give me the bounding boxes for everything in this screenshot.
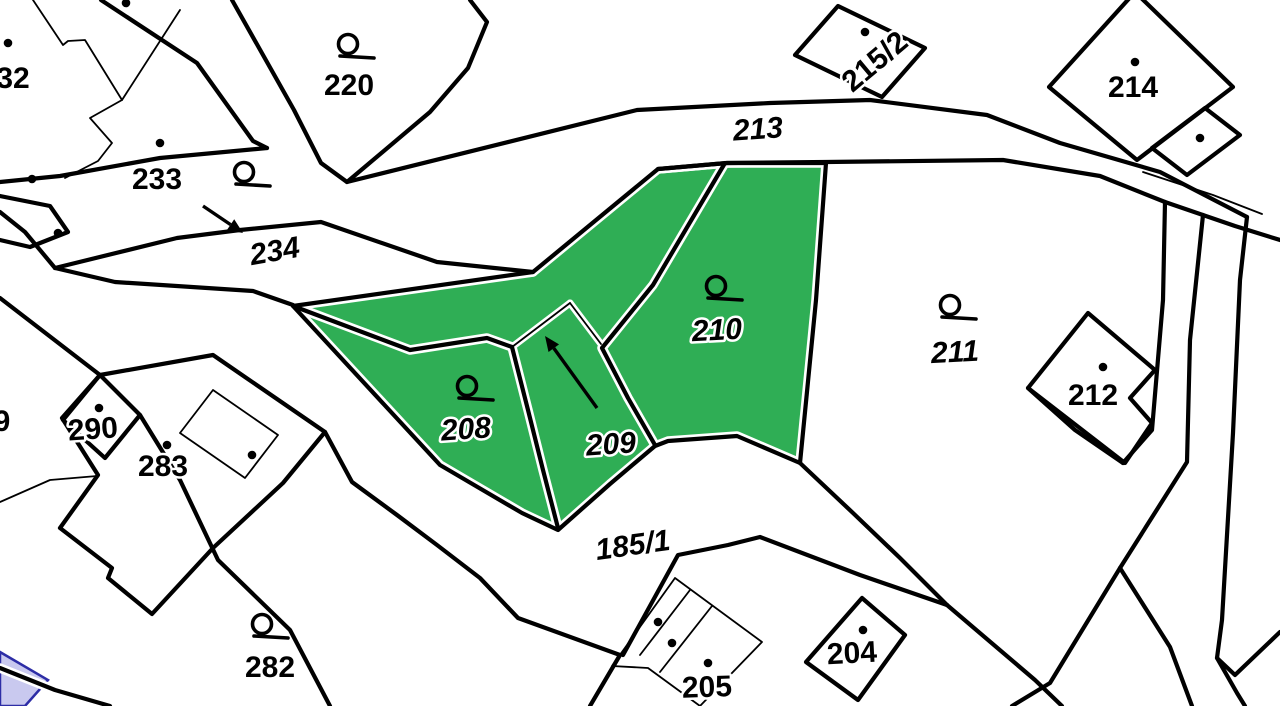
label-parcel-211: 211 bbox=[929, 335, 979, 371]
building-dot bbox=[248, 451, 257, 460]
building-dot bbox=[861, 28, 870, 37]
landuse-tail-icon bbox=[459, 398, 493, 400]
label-parcel-209: 209 bbox=[584, 426, 638, 463]
landuse-tail-icon bbox=[340, 56, 374, 58]
label-parcel-9: 9 bbox=[0, 405, 10, 438]
building-dot bbox=[1196, 134, 1205, 143]
map-canvas[interactable]: 32233220234213215/2214210211212208209185… bbox=[0, 0, 1280, 706]
label-parcel-214: 214 bbox=[1108, 71, 1158, 104]
building-dot bbox=[654, 618, 663, 627]
label-parcel-210: 210 bbox=[690, 313, 743, 349]
label-parcel-204: 204 bbox=[826, 636, 878, 672]
building-dot bbox=[1131, 58, 1140, 67]
label-parcel-283: 283 bbox=[138, 450, 188, 483]
building-dot bbox=[28, 175, 37, 184]
cadastral-map[interactable]: 32233220234213215/2214210211212208209185… bbox=[0, 0, 1280, 706]
label-parcel-32: 32 bbox=[0, 62, 30, 95]
landuse-tail-icon bbox=[236, 184, 270, 186]
label-parcel-205: 205 bbox=[681, 670, 732, 705]
building-dot bbox=[95, 404, 104, 413]
building-dot bbox=[163, 441, 172, 450]
building-dot bbox=[704, 659, 713, 668]
building-dot bbox=[859, 626, 868, 635]
label-parcel-213: 213 bbox=[731, 111, 785, 148]
label-parcel-282: 282 bbox=[245, 651, 295, 684]
label-parcel-233: 233 bbox=[132, 163, 182, 196]
label-parcel-290: 290 bbox=[67, 411, 119, 447]
building-dot bbox=[156, 139, 165, 148]
building-dot bbox=[54, 229, 63, 238]
landuse-tail-icon bbox=[708, 298, 742, 300]
building-dot bbox=[1099, 363, 1108, 372]
label-parcel-212: 212 bbox=[1068, 379, 1118, 412]
building-dot bbox=[668, 639, 677, 648]
building-dot bbox=[4, 39, 13, 48]
landuse-tail-icon bbox=[942, 317, 976, 319]
label-parcel-208: 208 bbox=[439, 411, 493, 448]
label-parcel-220: 220 bbox=[324, 69, 374, 102]
landuse-tail-icon bbox=[254, 636, 288, 638]
